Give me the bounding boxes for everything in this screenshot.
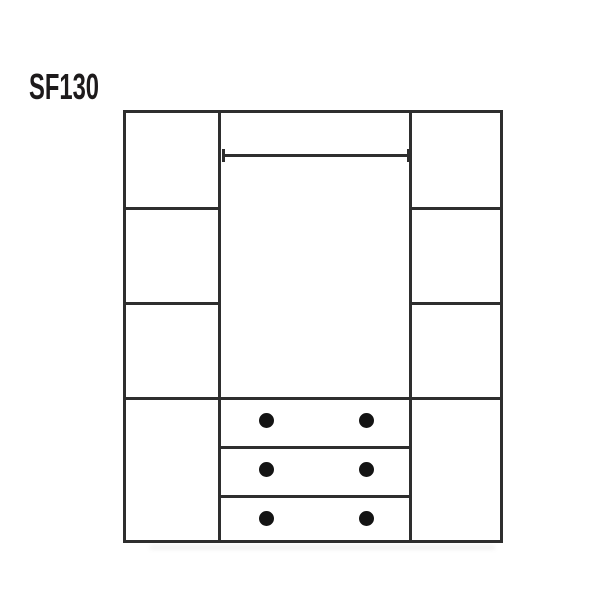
drawer-divider-upper: [218, 446, 412, 449]
right-column-divider-lower: [409, 302, 500, 305]
drawer-section-top-line: [126, 397, 500, 400]
drawer-knob-icon: [259, 413, 274, 428]
right-vertical-divider: [409, 113, 412, 540]
drawer-divider-lower: [218, 495, 412, 498]
diagram-canvas: SF130: [0, 0, 600, 600]
drawer-knob-icon: [359, 413, 374, 428]
dimension-tick-right-icon: [407, 149, 410, 162]
dimension-bar: [222, 154, 410, 157]
left-column-divider-lower: [126, 302, 220, 305]
right-column-divider-upper: [409, 207, 500, 210]
drawer-knob-icon: [259, 462, 274, 477]
left-column-divider-upper: [126, 207, 220, 210]
drawer-knob-icon: [259, 511, 274, 526]
scan-ghost-line: [150, 546, 495, 549]
wardrobe-outline: [123, 110, 503, 543]
width-dimension-line: [222, 149, 410, 162]
drawer-knob-icon: [359, 462, 374, 477]
product-code-label: SF130: [29, 69, 99, 105]
drawer-knob-icon: [359, 511, 374, 526]
left-vertical-divider: [218, 113, 221, 540]
